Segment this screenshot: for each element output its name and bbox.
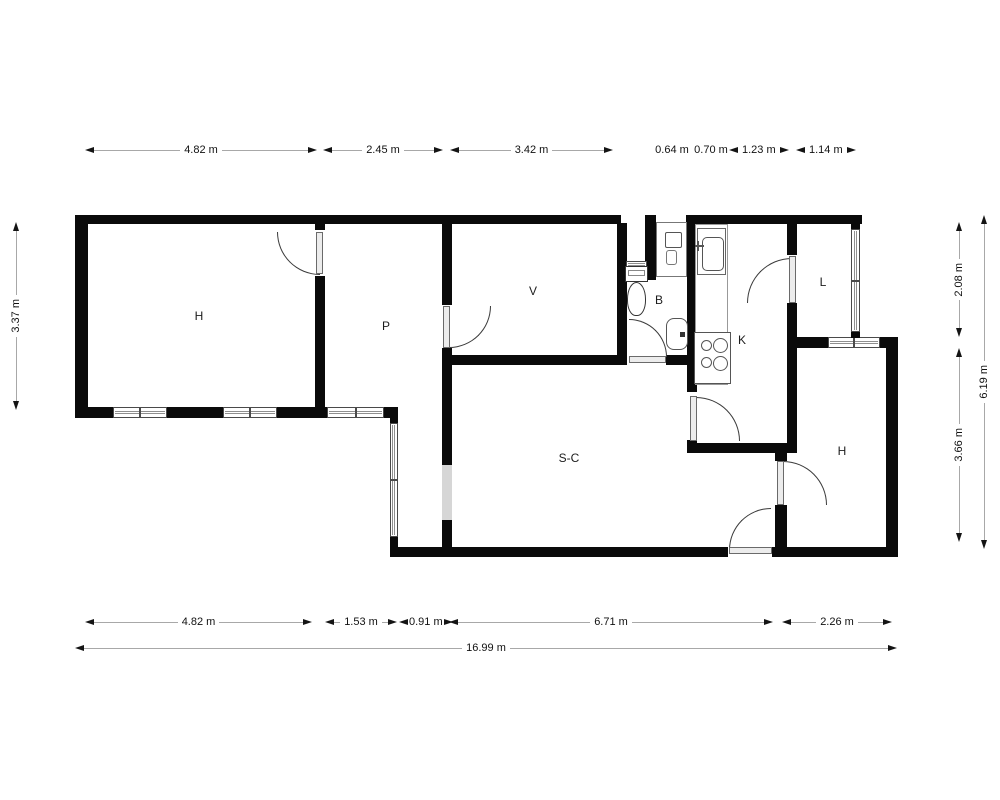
arrow-up-icon [956,348,962,357]
toilet-bowl-icon [627,282,646,316]
arrow-left-icon [85,147,94,153]
burner-icon [713,356,728,371]
door-swing-arc [747,258,792,303]
door-leaf [789,256,796,303]
dimension-bottom-1: 4.82 m [85,616,312,628]
arrow-right-icon [764,619,773,625]
dimension-bottom-2: 1.53 m [325,616,397,628]
arrow-right-icon [308,147,317,153]
room-label-sc: S-C [559,451,580,465]
kitchen-sink-icon [697,228,726,275]
soap-dish-icon [666,250,677,265]
washbasin-cabinet [656,222,687,277]
arrow-right-icon [888,645,897,651]
exterior-wall-bottom-left [390,547,728,557]
gallery-corner-bottom [390,537,398,547]
arrow-right-icon [883,619,892,625]
arrow-right-icon [780,147,789,153]
arrow-left-icon [323,147,332,153]
door-swing-arc [629,319,667,357]
arrow-left-icon [399,619,408,625]
window [113,407,167,418]
wall-k-l-lower [787,303,797,348]
arrow-left-icon [729,147,738,153]
dimension-bottom-3: 0.91 m [399,616,445,628]
door-leaf [777,461,784,505]
arrow-down-icon [956,328,962,337]
window [828,337,880,348]
wall-sc-h-lower [775,505,787,549]
burner-icon [701,340,712,351]
door-swing-arc [783,461,827,505]
wall-sc-lower-left [442,520,452,548]
wall-v-bottom [442,355,627,365]
dimension-label: 3.37 m [10,295,22,337]
room-label-p: P [382,319,390,333]
burner-icon [701,357,712,368]
exterior-wall-top-left [75,215,621,224]
exterior-wall-top-right [686,215,862,224]
wall-p-sc [442,348,452,465]
dimension-label: 2.08 m [953,259,965,301]
dimension-right-upper: 2.08 m [953,222,965,337]
arrow-left-icon [75,645,84,651]
room-label-h-left: H [195,309,204,323]
arrow-left-icon [782,619,791,625]
wall-sc-h-stub [775,453,787,461]
arrow-up-icon [981,215,987,224]
dimension-label: 16.99 m [462,642,510,654]
dimension-label: 2.45 m [362,144,404,156]
dimension-label: 3.66 m [953,424,965,466]
door-leaf [690,396,697,441]
stove-icon [694,332,731,384]
arrow-right-icon [303,619,312,625]
arrow-right-icon [434,147,443,153]
room-label-v: V [529,284,537,298]
dimension-top-3: 3.42 m [450,144,613,156]
arrow-left-icon [85,619,94,625]
window [851,229,860,332]
dimension-total-width: 16.99 m [75,642,897,654]
washbasin-icon [665,232,682,248]
exterior-wall-bottom-hp-4 [384,407,398,418]
wall-h-p [315,276,325,407]
room-label-l: L [820,275,827,289]
wall-opening [442,465,452,520]
dimension-top-2: 2.45 m [323,144,443,156]
door-leaf [729,547,772,554]
wall-sc-h-junction [775,443,797,453]
arrow-right-icon [604,147,613,153]
door-swing-arc [696,397,740,441]
exterior-wall-bottom-hp-2 [167,407,223,418]
wall-h-p-stub [315,224,325,230]
door-swing-arc [449,306,491,348]
dimension-label: 1.14 m [805,144,847,156]
dimension-label: 1.53 m [340,616,382,628]
window [390,423,398,537]
wall-v-b [617,223,627,365]
dimension-label: 3.42 m [511,144,553,156]
room-label-h-right: H [838,444,847,458]
dimension-top-7: 1.14 m [796,144,853,156]
wall-p-v-upper [442,224,452,305]
dimension-top-6: 1.23 m [729,144,786,156]
dimension-right-total: 6.19 m [978,215,990,549]
dimension-label: 6.71 m [590,616,632,628]
room-label-k: K [738,333,746,347]
dimension-right-lower: 3.66 m [953,348,965,542]
exterior-wall-bottom-right [772,547,898,557]
arrow-up-icon [956,222,962,231]
window [327,407,384,418]
arrow-up-icon [13,222,19,231]
window [223,407,277,418]
door-swing-arc [729,508,771,550]
arrow-right-icon [388,619,397,625]
wall-k-l-upper [787,215,797,255]
dimension-label: 0.91 m [408,616,444,628]
dimension-label: 4.82 m [180,144,222,156]
dimension-label: 4.82 m [178,616,220,628]
arrow-down-icon [981,540,987,549]
arrow-left-icon [450,147,459,153]
exterior-wall-bottom-hp-1 [75,407,113,418]
dimension-label: 2.26 m [816,616,858,628]
door-leaf [316,232,323,274]
door-leaf [443,306,450,348]
exterior-wall-left [75,215,88,418]
arrow-down-icon [956,533,962,542]
bidet-icon [666,318,688,350]
arrow-down-icon [13,401,19,410]
toilet-icon [625,266,648,282]
arrow-left-icon [325,619,334,625]
arrow-left-icon [796,147,805,153]
arrow-right-icon [847,147,856,153]
dimension-left: 3.37 m [10,222,22,410]
l-window-cap-bottom [851,332,860,338]
dimension-bottom-5: 2.26 m [782,616,892,628]
dimension-bottom-4: 6.71 m [449,616,773,628]
exterior-wall-right [886,337,898,557]
arrow-left-icon [449,619,458,625]
dimension-label: 1.23 m [738,144,780,156]
floor-plan: 4.82 m 2.45 m 3.42 m 0.64 m 0.70 m 1.23 … [0,0,1000,800]
room-label-b: B [655,293,663,307]
exterior-wall-bottom-hp-3 [277,407,327,418]
dimension-top-1: 4.82 m [85,144,317,156]
burner-icon [713,338,728,353]
dimension-top-5: 0.70 m [688,144,734,156]
door-leaf [629,356,666,363]
wall-k-right [787,348,797,453]
dimension-label: 6.19 m [978,361,990,403]
door-swing-arc [277,232,320,275]
